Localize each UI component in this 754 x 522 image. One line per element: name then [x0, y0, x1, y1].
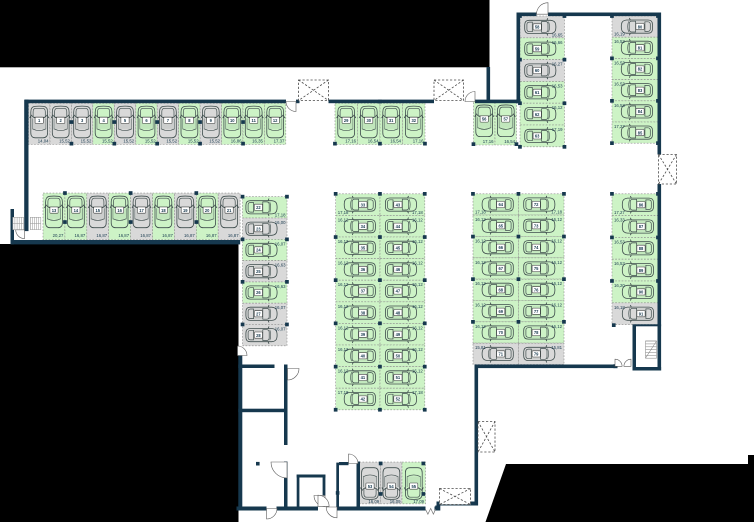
svg-text:56: 56 — [482, 117, 487, 122]
svg-text:75: 75 — [534, 266, 539, 271]
svg-text:16,54: 16,54 — [390, 139, 401, 144]
svg-text:16,12: 16,12 — [338, 282, 349, 287]
svg-text:17,27: 17,27 — [614, 124, 625, 129]
svg-text:40: 40 — [361, 354, 366, 359]
svg-text:16,12: 16,12 — [338, 347, 349, 352]
svg-text:15,52: 15,52 — [188, 139, 199, 144]
svg-text:54: 54 — [389, 484, 394, 489]
svg-text:10: 10 — [230, 118, 235, 123]
svg-text:15,52: 15,52 — [102, 139, 113, 144]
svg-text:16,12: 16,12 — [551, 260, 562, 265]
svg-text:16,53: 16,53 — [614, 239, 625, 244]
svg-text:16,87: 16,87 — [228, 233, 239, 238]
svg-text:29: 29 — [344, 118, 349, 123]
svg-text:16,27: 16,27 — [552, 62, 563, 67]
svg-text:16,09: 16,09 — [390, 499, 401, 504]
svg-text:16,53: 16,53 — [614, 39, 625, 44]
svg-text:16,35: 16,35 — [252, 139, 263, 144]
svg-text:55: 55 — [412, 484, 417, 489]
svg-text:17,18: 17,18 — [475, 210, 486, 215]
svg-text:16,20: 16,20 — [614, 283, 625, 288]
svg-text:16,87: 16,87 — [118, 233, 129, 238]
svg-text:28: 28 — [256, 333, 261, 338]
svg-text:16,53: 16,53 — [552, 83, 563, 88]
svg-text:16,87: 16,87 — [162, 233, 173, 238]
svg-text:17,18: 17,18 — [338, 210, 349, 215]
svg-text:33: 33 — [361, 202, 366, 207]
svg-text:62: 62 — [535, 112, 540, 117]
svg-text:15,52: 15,52 — [166, 139, 177, 144]
svg-text:67: 67 — [499, 266, 504, 271]
svg-text:58: 58 — [535, 25, 540, 30]
svg-text:16,12: 16,12 — [412, 325, 423, 330]
svg-text:16,12: 16,12 — [338, 261, 349, 266]
svg-text:16,66: 16,66 — [552, 40, 563, 45]
svg-text:61: 61 — [535, 90, 540, 95]
svg-text:16,65: 16,65 — [552, 32, 563, 37]
svg-text:20: 20 — [205, 208, 210, 213]
svg-text:14: 14 — [74, 208, 79, 213]
svg-text:16,09: 16,09 — [368, 499, 379, 504]
svg-text:16,53: 16,53 — [614, 60, 625, 65]
svg-text:38: 38 — [361, 310, 366, 315]
svg-text:16,18: 16,18 — [614, 305, 625, 310]
svg-text:32: 32 — [412, 118, 417, 123]
svg-text:81: 81 — [638, 46, 643, 51]
svg-text:15,52: 15,52 — [81, 139, 92, 144]
svg-text:16,12: 16,12 — [412, 261, 423, 266]
svg-text:16,12: 16,12 — [338, 325, 349, 330]
svg-text:16,87: 16,87 — [96, 233, 107, 238]
svg-text:16,63: 16,63 — [275, 284, 286, 289]
svg-text:50: 50 — [396, 354, 401, 359]
svg-text:16,12: 16,12 — [552, 105, 563, 110]
svg-text:63: 63 — [535, 134, 540, 139]
svg-text:16,53: 16,53 — [614, 82, 625, 87]
svg-text:16,19: 16,19 — [614, 32, 625, 37]
svg-text:15,52: 15,52 — [209, 139, 220, 144]
svg-text:43: 43 — [396, 202, 401, 207]
svg-text:17,18: 17,18 — [412, 390, 423, 395]
svg-text:18: 18 — [161, 208, 166, 213]
svg-text:16,12: 16,12 — [475, 239, 486, 244]
svg-text:83: 83 — [638, 88, 643, 93]
svg-text:70: 70 — [499, 330, 504, 335]
svg-text:16,12: 16,12 — [551, 217, 562, 222]
svg-text:16,12: 16,12 — [551, 239, 562, 244]
svg-text:16,07: 16,07 — [275, 327, 286, 332]
svg-text:16,53: 16,53 — [614, 103, 625, 108]
svg-text:16,87: 16,87 — [206, 233, 217, 238]
svg-text:16,12: 16,12 — [338, 239, 349, 244]
svg-text:15,81: 15,81 — [475, 345, 486, 350]
svg-text:35: 35 — [361, 246, 366, 251]
svg-text:42: 42 — [361, 397, 366, 402]
svg-text:16,63: 16,63 — [275, 263, 286, 268]
svg-text:71: 71 — [499, 352, 504, 357]
svg-text:16: 16 — [117, 208, 122, 213]
svg-text:66: 66 — [499, 245, 504, 250]
svg-text:17,37: 17,37 — [274, 139, 285, 144]
svg-text:20,27: 20,27 — [53, 233, 64, 238]
svg-text:16,12: 16,12 — [338, 217, 349, 222]
svg-text:74: 74 — [534, 245, 539, 250]
svg-text:60: 60 — [535, 68, 540, 73]
svg-text:77: 77 — [534, 309, 539, 314]
svg-text:17,19: 17,19 — [552, 127, 563, 132]
svg-text:84: 84 — [638, 109, 643, 114]
svg-text:31: 31 — [389, 118, 394, 123]
svg-text:16,12: 16,12 — [412, 369, 423, 374]
svg-text:16,12: 16,12 — [551, 324, 562, 329]
svg-text:16,12: 16,12 — [412, 282, 423, 287]
svg-text:16,54: 16,54 — [368, 139, 379, 144]
svg-text:17,27: 17,27 — [614, 210, 625, 215]
svg-text:15,52: 15,52 — [59, 139, 70, 144]
svg-text:57: 57 — [504, 117, 509, 122]
svg-text:16,54: 16,54 — [504, 139, 515, 144]
svg-text:51: 51 — [396, 375, 401, 380]
svg-text:47: 47 — [396, 289, 401, 294]
svg-text:25: 25 — [256, 269, 261, 274]
svg-text:15: 15 — [96, 208, 101, 213]
svg-text:16,07: 16,07 — [275, 305, 286, 310]
svg-text:15,81: 15,81 — [551, 345, 562, 350]
svg-text:16,12: 16,12 — [412, 304, 423, 309]
svg-text:17,18: 17,18 — [275, 213, 286, 218]
svg-text:16,12: 16,12 — [412, 217, 423, 222]
svg-text:26: 26 — [256, 290, 261, 295]
svg-text:16,00: 16,00 — [275, 220, 286, 225]
svg-text:90: 90 — [639, 290, 644, 295]
svg-text:22: 22 — [256, 205, 261, 210]
svg-text:16,87: 16,87 — [140, 233, 151, 238]
svg-text:16,87: 16,87 — [75, 233, 86, 238]
svg-text:87: 87 — [639, 224, 644, 229]
svg-text:21: 21 — [227, 208, 232, 213]
svg-text:16,12: 16,12 — [551, 303, 562, 308]
svg-text:76: 76 — [534, 288, 539, 293]
svg-text:23: 23 — [256, 226, 261, 231]
svg-text:24: 24 — [256, 248, 261, 253]
svg-text:16,12: 16,12 — [475, 324, 486, 329]
svg-text:44: 44 — [396, 224, 401, 229]
svg-text:72: 72 — [534, 202, 539, 207]
svg-text:49: 49 — [396, 332, 401, 337]
svg-text:45: 45 — [396, 246, 401, 251]
svg-text:16,87: 16,87 — [184, 233, 195, 238]
svg-text:48: 48 — [396, 310, 401, 315]
svg-text:80: 80 — [638, 24, 643, 29]
svg-text:53: 53 — [368, 484, 373, 489]
svg-text:12: 12 — [273, 118, 278, 123]
svg-text:16,12: 16,12 — [412, 347, 423, 352]
svg-text:30: 30 — [367, 118, 372, 123]
svg-text:16,86: 16,86 — [231, 139, 242, 144]
svg-text:17,16: 17,16 — [483, 139, 494, 144]
svg-text:17,18: 17,18 — [338, 390, 349, 395]
svg-text:16,53: 16,53 — [614, 261, 625, 266]
svg-text:79: 79 — [534, 352, 539, 357]
svg-text:19: 19 — [183, 208, 188, 213]
svg-text:64: 64 — [499, 202, 504, 207]
svg-text:41: 41 — [361, 375, 366, 380]
svg-text:16,12: 16,12 — [338, 304, 349, 309]
svg-text:16,12: 16,12 — [338, 369, 349, 374]
svg-text:59: 59 — [535, 46, 540, 51]
svg-text:16,12: 16,12 — [475, 260, 486, 265]
svg-text:68: 68 — [499, 288, 504, 293]
svg-text:88: 88 — [639, 246, 644, 251]
svg-text:82: 82 — [638, 67, 643, 72]
svg-text:17,18: 17,18 — [412, 210, 423, 215]
svg-text:34: 34 — [361, 224, 366, 229]
svg-text:36: 36 — [361, 267, 366, 272]
svg-text:69: 69 — [499, 309, 504, 314]
svg-text:86: 86 — [639, 202, 644, 207]
svg-text:15,52: 15,52 — [145, 139, 156, 144]
svg-text:16,33: 16,33 — [614, 218, 625, 223]
svg-text:46: 46 — [396, 267, 401, 272]
svg-text:65: 65 — [499, 224, 504, 229]
svg-text:16,07: 16,07 — [275, 241, 286, 246]
svg-text:85: 85 — [638, 130, 643, 135]
svg-text:16,12: 16,12 — [475, 303, 486, 308]
svg-text:91: 91 — [639, 311, 644, 316]
svg-text:27: 27 — [256, 312, 261, 317]
svg-text:73: 73 — [534, 224, 539, 229]
svg-text:16,12: 16,12 — [412, 239, 423, 244]
svg-text:15,52: 15,52 — [123, 139, 134, 144]
svg-text:13: 13 — [52, 208, 57, 213]
svg-text:39: 39 — [361, 332, 366, 337]
svg-text:17,16: 17,16 — [413, 139, 424, 144]
svg-text:17: 17 — [139, 208, 144, 213]
svg-text:17,18: 17,18 — [551, 210, 562, 215]
svg-text:17,16: 17,16 — [345, 139, 356, 144]
svg-text:78: 78 — [534, 330, 539, 335]
svg-text:89: 89 — [639, 268, 644, 273]
svg-text:17,09: 17,09 — [413, 499, 424, 504]
svg-text:52: 52 — [396, 397, 401, 402]
svg-text:11: 11 — [252, 118, 257, 123]
svg-text:14,04: 14,04 — [38, 139, 49, 144]
svg-text:37: 37 — [361, 289, 366, 294]
svg-text:16,12: 16,12 — [475, 217, 486, 222]
svg-text:16,12: 16,12 — [475, 281, 486, 286]
svg-text:16,12: 16,12 — [551, 281, 562, 286]
